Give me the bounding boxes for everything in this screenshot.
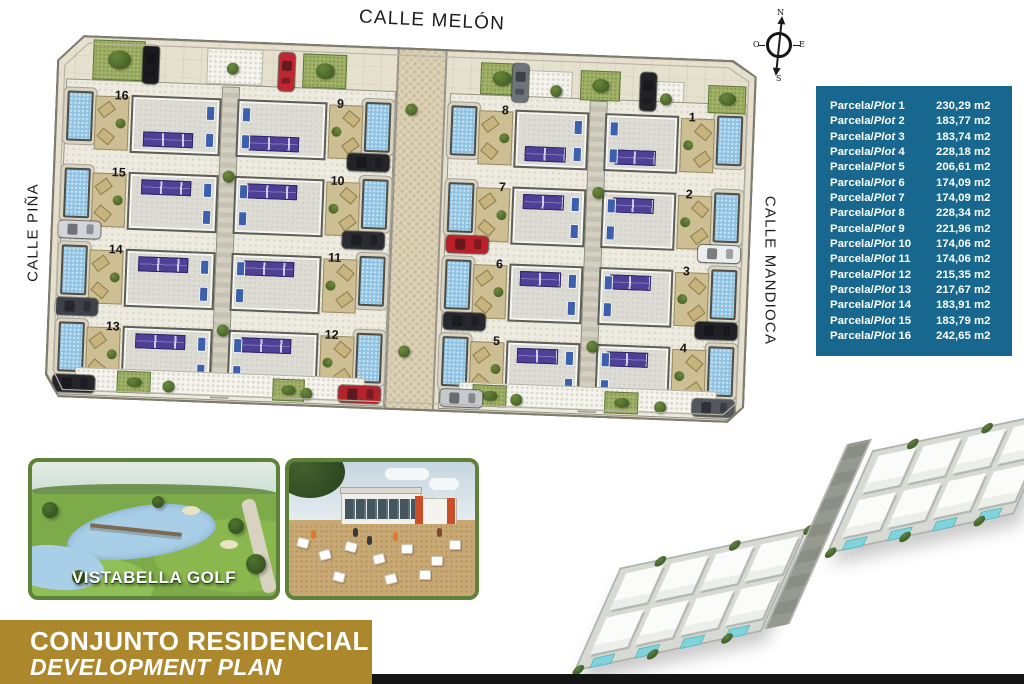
tree-icon <box>719 632 734 644</box>
lounge-chair-icon <box>691 200 710 218</box>
swimming-pool <box>444 259 472 310</box>
plant-icon <box>677 294 687 304</box>
lounge-chair-icon <box>481 115 500 133</box>
villa-roof <box>603 113 679 174</box>
roof-skylights <box>570 197 582 239</box>
lounge-chair-icon <box>690 227 709 245</box>
person-icon <box>353 528 358 537</box>
skylight <box>607 198 617 213</box>
lounge-chair-icon <box>688 277 707 295</box>
restaurant-roof <box>340 487 422 494</box>
skylight <box>242 107 252 122</box>
plot-label: Parcela/Plot 12 <box>830 268 911 283</box>
car-icon <box>55 297 98 316</box>
table-row: Parcela/Plot 16242,65 m2 <box>830 329 1000 344</box>
lounge-chair-icon <box>97 101 116 119</box>
render-3d-aerial <box>606 424 1024 642</box>
plot-area: 206,61 m2 <box>936 160 1000 175</box>
lounge-chair-icon <box>91 254 110 272</box>
render-block <box>826 411 1024 555</box>
lounge-chair-icon <box>477 219 496 237</box>
skylight <box>570 224 580 239</box>
car-icon <box>446 235 489 254</box>
table-row: Parcela/Plot 1230,29 m2 <box>830 99 1000 114</box>
tree-icon <box>152 496 164 508</box>
villa-roof <box>230 253 322 314</box>
skylight <box>603 302 613 317</box>
street-label-calle-melon: CALLE MELÓN <box>322 5 543 38</box>
plot-area: 228,34 m2 <box>936 206 1000 221</box>
development-plan-page: 16151413910111287651234 CALLE MELÓN CALL… <box>0 0 1024 684</box>
villa-roof <box>597 267 673 328</box>
garden-patch <box>92 39 145 81</box>
housing-block-west: 161514139101112 <box>52 34 398 409</box>
lounge-chair-icon <box>88 331 107 349</box>
swimming-pool <box>66 90 94 141</box>
car-icon <box>342 231 385 250</box>
plot-number: 10 <box>328 173 347 188</box>
plot-label: Parcela/Plot 9 <box>830 222 905 237</box>
swimming-pool <box>450 105 478 156</box>
swimming-pool <box>57 321 85 372</box>
skylight <box>235 288 245 303</box>
car-icon <box>639 72 656 111</box>
car-icon <box>695 322 738 341</box>
restaurant-building <box>341 490 421 526</box>
street-label-calle-pina: CALLE PIÑA <box>25 158 42 308</box>
golf-bunker <box>182 506 200 515</box>
solar-panels <box>517 348 558 365</box>
lounge-chair-icon <box>475 269 494 287</box>
plot-number: 1 <box>683 110 702 125</box>
skylight <box>236 261 246 276</box>
banner-subtitle: DEVELOPMENT PLAN <box>30 655 372 680</box>
table-row: Parcela/Plot 15183,79 m2 <box>830 314 1000 329</box>
restaurant-photo <box>285 458 479 600</box>
plot-label: Parcela/Plot 7 <box>830 191 905 206</box>
plant-icon <box>331 127 341 137</box>
villa-roof <box>510 187 586 248</box>
terrace <box>91 172 127 227</box>
plot-number: 9 <box>331 97 350 112</box>
roof-skylights <box>605 198 617 240</box>
table-row: Parcela/Plot 11174,06 m2 <box>830 252 1000 267</box>
plot-label: Parcela/Plot 11 <box>830 252 910 267</box>
plot-number: 11 <box>325 250 344 265</box>
lounge-chair-icon <box>336 264 355 282</box>
lounge-chair-icon <box>687 304 706 322</box>
plot-area: 217,67 m2 <box>936 283 1000 298</box>
table-row: Parcela/Plot 3183,74 m2 <box>830 130 1000 145</box>
solar-panels <box>523 194 564 211</box>
car-icon <box>58 220 101 239</box>
render-villa <box>951 429 1006 474</box>
swimming-pool <box>447 182 475 233</box>
terrace <box>88 249 124 304</box>
skylight <box>233 338 243 353</box>
car-icon <box>443 312 486 331</box>
plant-icon <box>490 364 500 374</box>
table-row: Parcela/Plot 6174,09 m2 <box>830 176 1000 191</box>
garden-patch <box>580 70 621 102</box>
lounge-chair-icon <box>93 204 112 222</box>
plot-area: 174,06 m2 <box>936 252 1000 267</box>
person-icon <box>393 532 398 541</box>
garden-patch <box>116 371 151 394</box>
restaurant-glass-wall <box>345 499 417 519</box>
render-villa <box>609 565 664 610</box>
plot-area: 242,65 m2 <box>936 329 1000 344</box>
plot-label: Parcela/Plot 5 <box>830 160 905 175</box>
plant-icon <box>328 204 338 214</box>
tree-icon <box>228 518 244 534</box>
render-villa <box>699 546 754 591</box>
tree-icon <box>823 547 838 559</box>
plot-area: 183,79 m2 <box>936 314 1000 329</box>
render-pool <box>932 517 958 532</box>
terrace <box>474 187 510 242</box>
plot-label: Parcela/Plot 15 <box>830 314 911 329</box>
render-villa <box>976 464 1024 509</box>
skylight <box>567 301 577 316</box>
plot-area: 174,09 m2 <box>936 191 1000 206</box>
plot-number: 13 <box>104 319 123 334</box>
lounge-chair-icon <box>339 187 358 205</box>
plot-number: 16 <box>112 88 131 103</box>
roof-skylights <box>238 184 250 226</box>
plant-icon <box>496 210 506 220</box>
car-icon <box>347 153 390 172</box>
swimming-pool <box>358 256 386 307</box>
plant-icon <box>325 280 335 290</box>
render-villa <box>861 448 916 493</box>
terrace-chair-icon <box>449 540 461 550</box>
lounge-chair-icon <box>478 192 497 210</box>
plot-label: Parcela/Plot 14 <box>830 298 911 313</box>
render-pool <box>589 653 615 668</box>
skylight <box>206 106 216 121</box>
skylight <box>601 352 611 367</box>
plot-label: Parcela/Plot 13 <box>830 283 911 298</box>
terrace <box>673 272 709 327</box>
plot-table-rows: Parcela/Plot 1230,29 m2Parcela/Plot 2183… <box>830 99 1000 345</box>
person-icon <box>311 530 316 539</box>
swimming-pool <box>361 179 389 230</box>
plot-label: Parcela/Plot 3 <box>830 130 905 145</box>
roof-skylights <box>199 260 211 302</box>
villa-roof <box>600 190 676 251</box>
swimming-pool <box>712 192 740 243</box>
terrace <box>94 95 130 150</box>
lounge-chair-icon <box>341 137 360 155</box>
skylight <box>203 183 213 198</box>
terrace <box>324 181 360 236</box>
site-plan: 16151413910111287651234 <box>44 34 757 424</box>
render-villa <box>841 492 896 537</box>
plant-icon <box>107 349 117 359</box>
lounge-chair-icon <box>94 178 113 196</box>
solar-panels <box>143 131 193 148</box>
plant-icon <box>680 217 690 227</box>
tree-icon <box>42 502 58 518</box>
roof-skylights <box>608 121 620 163</box>
skylight <box>239 184 249 199</box>
car-icon <box>698 245 741 264</box>
terrace-chair-icon <box>401 544 413 554</box>
table-row: Parcela/Plot 9221,96 m2 <box>830 222 1000 237</box>
table-row: Parcela/Plot 13217,67 m2 <box>830 283 1000 298</box>
garden-patch <box>272 379 305 402</box>
compass-rose-icon: N S E O <box>751 8 807 88</box>
plant-icon <box>499 133 509 143</box>
plot-label: Parcela/Plot 2 <box>830 114 905 129</box>
roof-skylights <box>572 120 584 162</box>
skylight <box>574 120 584 135</box>
solar-panels <box>141 179 191 196</box>
villa-roof <box>129 95 221 156</box>
render-pool <box>842 536 868 551</box>
table-row: Parcela/Plot 4228,18 m2 <box>830 145 1000 160</box>
lounge-chair-icon <box>472 346 491 364</box>
swimming-pool <box>707 346 735 397</box>
solar-panels <box>613 197 654 214</box>
roof-skylights <box>205 106 217 148</box>
solar-panels <box>249 135 299 152</box>
swimming-pool <box>441 336 469 387</box>
plot-number: 6 <box>490 257 509 272</box>
compass-tick <box>758 45 765 47</box>
plant-icon <box>493 287 503 297</box>
skylight <box>241 134 251 149</box>
car-icon <box>278 53 295 92</box>
car-icon <box>338 385 381 404</box>
terrace-chair-icon <box>431 556 443 566</box>
villa-roof <box>127 172 219 233</box>
skylight <box>571 197 581 212</box>
cloud-icon <box>385 468 429 480</box>
lounge-chair-icon <box>96 127 115 145</box>
lounge-chair-icon <box>685 354 704 372</box>
golf-photo: VISTABELLA GOLF <box>28 458 280 600</box>
plot-area: 183,74 m2 <box>936 130 1000 145</box>
swimming-pool <box>60 244 88 295</box>
render-group <box>558 394 1024 680</box>
skylight <box>568 274 578 289</box>
solar-panels <box>247 183 297 200</box>
terrace <box>322 258 358 313</box>
swimming-pool <box>715 115 743 166</box>
render-villa <box>679 591 734 636</box>
lounge-chair-icon <box>694 123 713 141</box>
swimming-pool <box>364 102 392 153</box>
lounge-chair-icon <box>90 281 109 299</box>
plot-area-table: Parcela/Plot 1230,29 m2Parcela/Plot 2183… <box>816 86 1012 356</box>
render-villa <box>589 610 644 655</box>
table-row: Parcela/Plot 2183,77 m2 <box>830 114 1000 129</box>
terrace <box>471 264 507 319</box>
render-villa <box>996 419 1024 464</box>
roof-skylights <box>241 107 253 149</box>
garden-patch <box>707 85 746 114</box>
plot-label: Parcela/Plot 6 <box>830 176 905 191</box>
skylight <box>604 275 614 290</box>
skylight <box>609 121 619 136</box>
villa-roof <box>507 264 583 325</box>
terrace <box>676 195 712 250</box>
render-pool <box>679 634 705 649</box>
solar-panels <box>607 351 648 368</box>
solar-panels <box>520 271 561 288</box>
skylight <box>197 337 207 352</box>
solar-panels <box>614 149 655 166</box>
plant-icon <box>110 272 120 282</box>
plot-area: 183,77 m2 <box>936 114 1000 129</box>
skylight <box>202 210 212 225</box>
swimming-pool <box>355 333 383 384</box>
garden-patch <box>302 53 347 89</box>
villa-roof <box>124 249 216 310</box>
solar-panels <box>241 337 291 354</box>
plot-label: Parcela/Plot 16 <box>830 329 911 344</box>
swimming-pool <box>710 269 738 320</box>
site-plan-items: 16151413910111287651234 <box>44 34 757 424</box>
plot-number: 7 <box>493 180 512 195</box>
car-icon <box>692 399 735 418</box>
plot-number: 4 <box>674 341 693 356</box>
solar-panels <box>610 274 651 291</box>
plot-area: 230,29 m2 <box>936 99 1000 114</box>
plot-number: 8 <box>496 103 515 118</box>
plot-area: 215,35 m2 <box>936 268 1000 283</box>
plot-number: 5 <box>487 334 506 349</box>
car-icon <box>512 63 529 102</box>
solar-panels <box>244 260 294 277</box>
skylight <box>199 287 209 302</box>
person-icon <box>437 528 442 537</box>
skylight <box>608 148 618 163</box>
golf-caption: VISTABELLA GOLF <box>32 568 276 588</box>
lounge-chair-icon <box>342 110 361 128</box>
plot-number: 3 <box>677 264 696 279</box>
roof-skylights <box>235 261 247 303</box>
plant-icon <box>674 371 684 381</box>
garden-patch <box>604 391 639 414</box>
skylight <box>238 211 248 226</box>
plot-label: Parcela/Plot 8 <box>830 206 905 221</box>
golf-bunker <box>220 540 238 549</box>
plot-label: Parcela/Plot 10 <box>830 237 911 252</box>
render-villa <box>886 483 941 528</box>
lounge-chair-icon <box>335 291 354 309</box>
roof-skylights <box>202 183 214 225</box>
plant-icon <box>322 357 332 367</box>
skylight <box>565 351 575 366</box>
villa-roof <box>513 110 589 171</box>
table-row: Parcela/Plot 12215,35 m2 <box>830 268 1000 283</box>
terrace-chair-icon <box>419 570 431 580</box>
render-block <box>574 528 808 672</box>
plot-number: 15 <box>109 165 128 180</box>
plant-icon <box>112 195 122 205</box>
render-villa <box>634 600 689 645</box>
roof-skylights <box>567 274 579 316</box>
plot-number: 2 <box>680 187 699 202</box>
solar-panels <box>135 333 185 350</box>
compass-tick <box>793 45 800 47</box>
tree-icon <box>972 515 987 527</box>
plot-number: 14 <box>107 242 126 257</box>
table-row: Parcela/Plot 5206,61 m2 <box>830 160 1000 175</box>
title-banner: CONJUNTO RESIDENCIAL DEVELOPMENT PLAN <box>0 620 372 684</box>
plot-area: 174,09 m2 <box>936 176 1000 191</box>
plot-number: 12 <box>322 327 341 342</box>
lounge-chair-icon <box>693 150 712 168</box>
plot-label: Parcela/Plot 4 <box>830 145 905 160</box>
villa-roof <box>235 99 327 160</box>
skylight <box>205 133 215 148</box>
render-villa <box>931 473 986 518</box>
plot-label: Parcela/Plot 1 <box>830 99 905 114</box>
plot-area: 221,96 m2 <box>936 222 1000 237</box>
banner-title: CONJUNTO RESIDENCIAL <box>30 627 372 655</box>
swimming-pool <box>63 167 91 218</box>
car-icon <box>440 389 483 408</box>
solar-panels <box>138 256 188 273</box>
plot-area: 183,91 m2 <box>936 298 1000 313</box>
car-icon <box>142 45 159 84</box>
terrace <box>679 118 715 173</box>
terrace <box>477 110 513 165</box>
bottom-bar <box>372 674 1024 684</box>
table-row: Parcela/Plot 14183,91 m2 <box>830 298 1000 313</box>
skylight <box>605 225 615 240</box>
villa-roof <box>232 176 324 237</box>
plant-icon <box>115 118 125 128</box>
street-label-calle-mandioca: CALLE MANDIOCA <box>762 185 779 357</box>
lounge-chair-icon <box>474 296 493 314</box>
plant-icon <box>683 140 693 150</box>
plot-area: 174,06 m2 <box>936 237 1000 252</box>
table-row: Parcela/Plot 8228,34 m2 <box>830 206 1000 221</box>
lounge-chair-icon <box>338 214 357 232</box>
plot-area: 228,18 m2 <box>936 145 1000 160</box>
skylight <box>572 147 582 162</box>
table-row: Parcela/Plot 10174,06 m2 <box>830 237 1000 252</box>
skylight <box>200 260 210 275</box>
lounge-chair-icon <box>333 341 352 359</box>
roof-skylights <box>603 275 615 317</box>
person-icon <box>367 536 372 545</box>
orange-pillar <box>415 496 423 526</box>
lounge-chair-icon <box>480 142 499 160</box>
table-row: Parcela/Plot 7174,09 m2 <box>830 191 1000 206</box>
car-icon <box>52 374 95 393</box>
terrace <box>327 104 363 159</box>
solar-panels <box>525 146 566 163</box>
